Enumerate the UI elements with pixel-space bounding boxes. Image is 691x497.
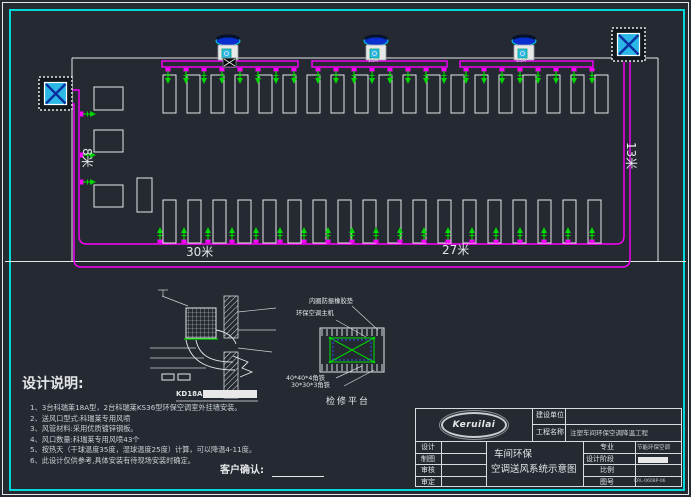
design-note-4: 4、风口数量:科瑞莱专用风喷43个 <box>30 435 140 445</box>
design-note-2: 2、送风口型式:科瑞莱专用风喷 <box>30 414 130 424</box>
cad-drawing-sheet: 30米 27米 13米 8米 18A 18A KD18A 内圈防振橡胶垫 环保空… <box>0 0 691 497</box>
design-note-3: 3、风管材料:采用优质镀锌钢板。 <box>30 424 138 434</box>
callout-angle-iron-small: 30*30*3角铁 <box>291 383 330 389</box>
customer-confirm-signature-line <box>272 476 324 477</box>
customer-confirm-label: 客户确认: <box>220 466 264 476</box>
platform-caption: 检修平台 <box>326 398 370 407</box>
project-name-label: 工程名称 <box>536 429 564 436</box>
sign-row-draft: 制图 <box>421 456 435 463</box>
company-logo: Keruilai <box>441 412 507 438</box>
detail-unit-label: KD18A <box>176 391 202 398</box>
specialty-label: 专业 <box>600 444 614 451</box>
design-stage-label: 设计阶段 <box>586 456 614 463</box>
roof-unit-2-label: 18A <box>368 59 378 64</box>
detail-wall-mount <box>150 290 276 401</box>
drawing-number-value: KRL-0608P-06 <box>634 480 666 485</box>
design-note-5: 5、按热天（干球温度35度，湿球温度25度）计算，可以降温4-11度。 <box>30 445 256 455</box>
sign-row-check: 审核 <box>421 467 435 474</box>
owner-label: 建设单位 <box>536 412 564 419</box>
duct-damper-box <box>223 58 236 67</box>
drawing-number-label: 图号 <box>600 479 614 486</box>
design-stage-redacted-bar <box>638 457 668 463</box>
callout-rubber-pad: 内圈防振橡胶垫 <box>309 299 353 305</box>
dim-bottom-left: 30米 <box>186 246 213 258</box>
specialty-value: 节能环保空调 <box>637 446 670 452</box>
roof-ac-unit-3 <box>512 36 536 60</box>
design-notes-title: 设计说明: <box>22 377 84 391</box>
sign-row-design: 设计 <box>421 444 435 451</box>
drawing-title-line1: 车间环保 <box>494 450 532 460</box>
main-duct-loop <box>70 61 630 267</box>
wall-fan-unit-top-right <box>612 28 645 61</box>
detail-label-highlight-bar <box>203 390 257 398</box>
roof-ac-unit-1 <box>216 36 240 60</box>
sign-row-approve: 审定 <box>421 479 435 486</box>
wall-fan-unit-left <box>39 77 72 110</box>
callout-host-unit: 环保空调主机 <box>296 311 334 317</box>
dim-left: 8米 <box>81 148 93 168</box>
project-name-value: 注塑车间环保空调降温工程 <box>570 430 648 437</box>
roof-ac-unit-2 <box>364 36 388 60</box>
dim-right: 13米 <box>625 142 637 169</box>
roof-unit-3-label: 18A <box>516 59 526 64</box>
scale-label: 比例 <box>600 467 614 474</box>
design-note-1: 1、3台科瑞莱18A型，2台科瑞莱KS36型环保空调室外挂墙安装。 <box>30 403 242 413</box>
design-note-6: 6、此设计仅供参考,具体安装有待现场安装时确定。 <box>30 456 195 466</box>
drawing-title-line2: 空调送风系统示意图 <box>491 465 577 475</box>
dim-bottom-right: 27米 <box>442 244 469 256</box>
detail-platform <box>320 306 384 386</box>
